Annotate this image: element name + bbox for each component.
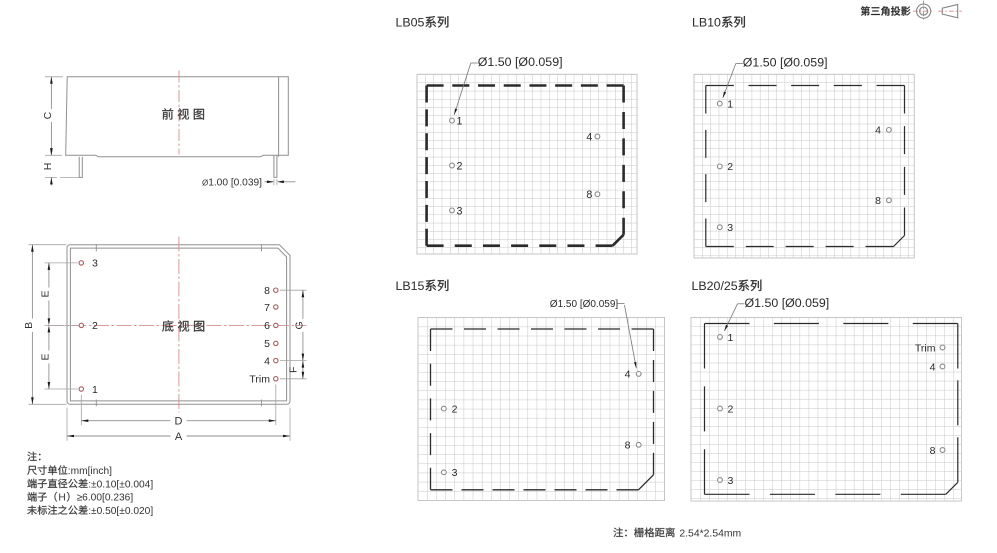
- svg-text:C: C: [42, 111, 54, 119]
- svg-text:4: 4: [586, 131, 592, 143]
- svg-text:F: F: [287, 367, 299, 373]
- svg-text:8: 8: [586, 189, 592, 201]
- svg-text:1: 1: [727, 98, 733, 110]
- svg-text:LB20/25: LB20/25: [692, 279, 738, 293]
- svg-text:D: D: [175, 416, 183, 428]
- svg-text:4: 4: [930, 361, 936, 373]
- svg-text:3: 3: [452, 467, 458, 479]
- svg-text:E: E: [40, 290, 52, 297]
- svg-text:Trim: Trim: [249, 374, 270, 386]
- svg-text:H: H: [42, 163, 54, 171]
- svg-text:Ø1.50 [Ø0.059]: Ø1.50 [Ø0.059]: [478, 55, 563, 69]
- svg-text:Trim: Trim: [915, 342, 936, 354]
- svg-text:2: 2: [728, 403, 734, 415]
- svg-text:3: 3: [728, 475, 734, 487]
- svg-text:1.00 [0.039]: 1.00 [0.039]: [208, 177, 262, 188]
- svg-text:LB05: LB05: [396, 16, 425, 30]
- svg-text:1: 1: [92, 384, 98, 396]
- svg-text:4: 4: [875, 125, 881, 137]
- svg-text:4: 4: [264, 355, 270, 367]
- svg-text:4: 4: [625, 369, 631, 381]
- svg-text::±0.50[±0.020]: :±0.50[±0.020]: [88, 506, 153, 517]
- svg-text:E: E: [40, 353, 52, 360]
- svg-text:5: 5: [264, 338, 270, 350]
- svg-text:B: B: [23, 322, 35, 329]
- svg-text:7: 7: [264, 302, 270, 314]
- svg-text:2: 2: [92, 320, 98, 332]
- svg-text:A: A: [175, 431, 183, 443]
- svg-text:G: G: [294, 321, 306, 329]
- svg-text:Ø1.50 [Ø0.059]: Ø1.50 [Ø0.059]: [745, 296, 830, 310]
- svg-text:8: 8: [875, 195, 881, 207]
- svg-text:LB10: LB10: [692, 16, 721, 30]
- svg-text:2: 2: [727, 161, 733, 173]
- svg-text:≥6.00[0.236]: ≥6.00[0.236]: [77, 493, 134, 504]
- svg-text:8: 8: [930, 445, 936, 457]
- svg-text:Ø1.50 [Ø0.059]: Ø1.50 [Ø0.059]: [743, 56, 828, 70]
- svg-text:3: 3: [92, 258, 98, 270]
- svg-text:8: 8: [264, 285, 270, 297]
- svg-text::±0.10[±0.004]: :±0.10[±0.004]: [88, 479, 153, 490]
- svg-text:1: 1: [728, 332, 734, 344]
- svg-text:2: 2: [452, 403, 458, 415]
- svg-text:Ø1.50 [Ø0.059]: Ø1.50 [Ø0.059]: [550, 299, 619, 310]
- svg-text:3: 3: [457, 205, 463, 217]
- svg-text:3: 3: [727, 222, 733, 234]
- svg-text::mm[inch]: :mm[inch]: [68, 466, 112, 477]
- svg-text:6: 6: [264, 320, 270, 332]
- svg-text:1: 1: [457, 116, 463, 128]
- svg-text:LB15: LB15: [396, 279, 425, 293]
- svg-text:2: 2: [457, 160, 463, 172]
- svg-text:H: H: [58, 493, 65, 504]
- svg-text:8: 8: [625, 440, 631, 452]
- svg-text:2.54*2.54mm: 2.54*2.54mm: [679, 528, 741, 539]
